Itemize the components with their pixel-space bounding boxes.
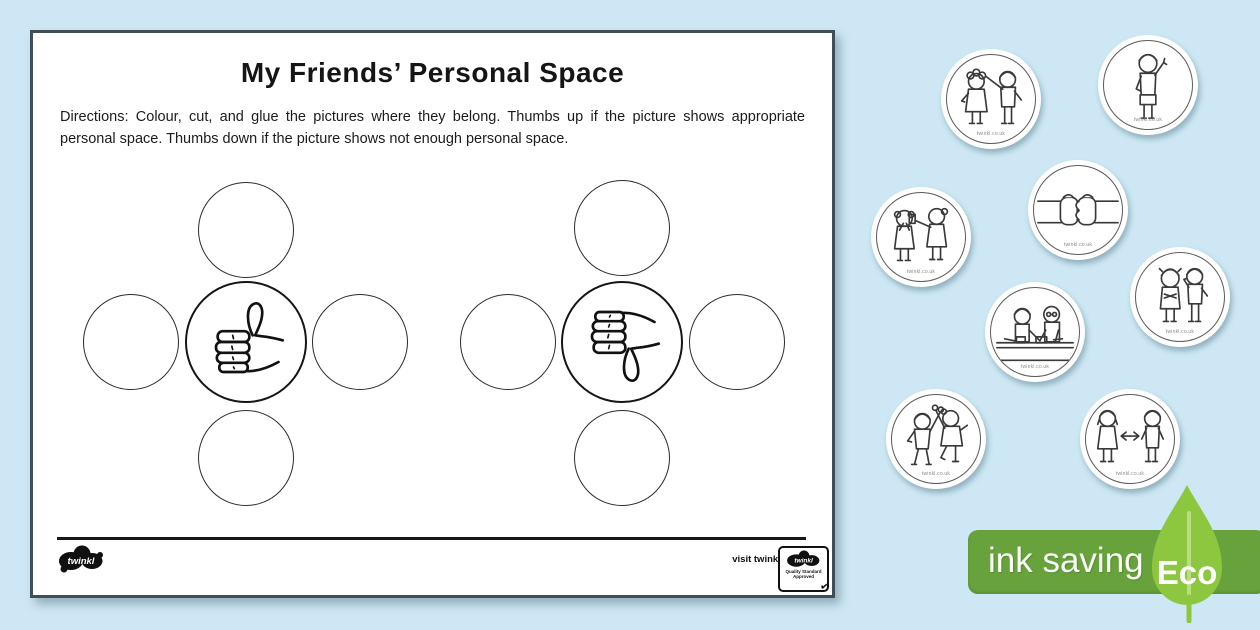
card-caption: twinkl.co.uk bbox=[1086, 471, 1174, 477]
high-five-illustration bbox=[892, 395, 980, 483]
badge-cloud-icon: twinkl bbox=[784, 549, 824, 569]
working-together-at-table-illustration bbox=[991, 288, 1079, 376]
fist-bump-illustration bbox=[1034, 166, 1122, 254]
card-caption: twinkl.co.uk bbox=[877, 269, 965, 275]
card-caption: twinkl.co.uk bbox=[991, 364, 1079, 370]
talking-too-close-illustration bbox=[1136, 253, 1224, 341]
directions-text: Directions: Colour, cut, and glue the pi… bbox=[60, 107, 805, 151]
pencil-check-icon: ✔ bbox=[819, 579, 830, 593]
ink-saving-label: ink saving bbox=[988, 530, 1144, 594]
card-caption: twinkl.co.uk bbox=[947, 131, 1035, 137]
thumbs-up-slot-bottom bbox=[198, 410, 294, 506]
thumbs-up-circle bbox=[185, 281, 307, 403]
page-title: My Friends’ Personal Space bbox=[33, 57, 832, 89]
badge-cloud-text: twinkl bbox=[794, 557, 813, 564]
thumbs-down-slot-bottom bbox=[574, 410, 670, 506]
twinkl-logo-text: twinkl bbox=[68, 556, 95, 567]
thumbs-down-icon bbox=[572, 292, 672, 392]
eco-leaf-icon: Eco bbox=[1142, 483, 1232, 623]
thumbs-down-circle bbox=[561, 281, 683, 403]
thumbs-up-slot-top bbox=[198, 182, 294, 278]
thumbs-up-slot-right bbox=[312, 294, 408, 390]
standing-arms-length-apart-illustration bbox=[1086, 395, 1174, 483]
card-friend-touching-hair: twinkl.co.uk bbox=[941, 49, 1041, 149]
card-fist-bump: twinkl.co.uk bbox=[1028, 160, 1128, 260]
quality-approved-badge: twinkl Quality Standard Approved ✔ bbox=[778, 546, 829, 592]
boy-waving-illustration bbox=[1104, 41, 1192, 129]
footer-divider bbox=[57, 537, 806, 540]
twinkl-cloud-logo: twinkl bbox=[56, 542, 108, 576]
thumbs-down-slot-top bbox=[574, 180, 670, 276]
card-working-together-at-table: twinkl.co.uk bbox=[985, 282, 1085, 382]
screenshot-stage: My Friends’ Personal Space Directions: C… bbox=[0, 0, 1260, 630]
thumbs-up-icon bbox=[196, 292, 296, 392]
showing-object-too-close-illustration bbox=[877, 193, 965, 281]
worksheet-page: My Friends’ Personal Space Directions: C… bbox=[30, 30, 835, 598]
thumbs-down-slot-left bbox=[460, 294, 556, 390]
badge-line2: Approved bbox=[793, 574, 814, 579]
eco-label: Eco bbox=[1157, 554, 1218, 591]
thumbs-down-slot-right bbox=[689, 294, 785, 390]
card-caption: twinkl.co.uk bbox=[1136, 329, 1224, 335]
card-talking-too-close: twinkl.co.uk bbox=[1130, 247, 1230, 347]
card-boy-waving: twinkl.co.uk bbox=[1098, 35, 1198, 135]
thumbs-up-slot-left bbox=[83, 294, 179, 390]
friend-touching-hair-illustration bbox=[947, 55, 1035, 143]
card-caption: twinkl.co.uk bbox=[1034, 242, 1122, 248]
card-showing-object-too-close: twinkl.co.uk bbox=[871, 187, 971, 287]
card-caption: twinkl.co.uk bbox=[892, 471, 980, 477]
card-standing-arms-length-apart: twinkl.co.uk bbox=[1080, 389, 1180, 489]
card-high-five: twinkl.co.uk bbox=[886, 389, 986, 489]
card-caption: twinkl.co.uk bbox=[1104, 117, 1192, 123]
